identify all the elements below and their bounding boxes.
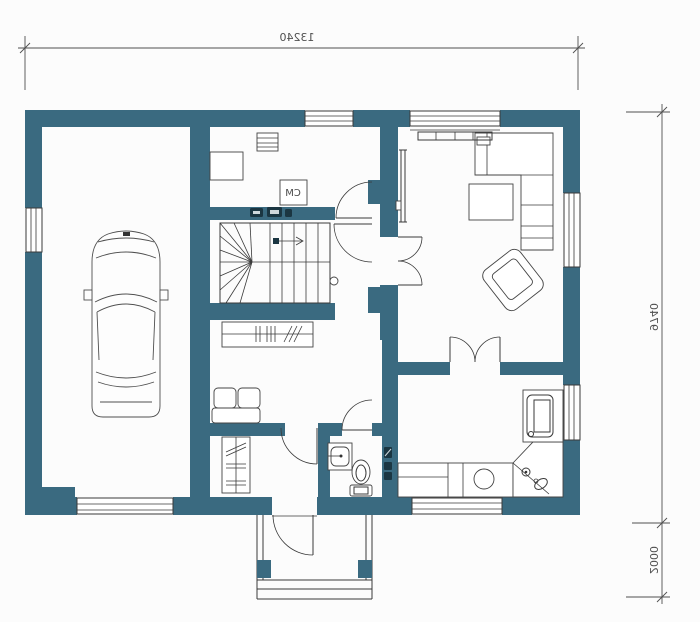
wardrobe-corridor bbox=[222, 437, 250, 493]
wardrobe-under-stairs bbox=[222, 322, 313, 347]
window-top-utility bbox=[305, 111, 353, 126]
kitchen-double-door bbox=[450, 337, 500, 362]
desk bbox=[210, 152, 243, 180]
stair-newel-post bbox=[330, 277, 338, 285]
window-left-garage bbox=[26, 208, 42, 252]
porch-steps bbox=[257, 580, 372, 599]
utility-room-door bbox=[336, 182, 372, 218]
staircase bbox=[220, 223, 338, 303]
window-right-kitchen bbox=[564, 385, 580, 440]
cm-label: CM bbox=[285, 188, 301, 199]
stair-direction-arrow bbox=[273, 237, 303, 245]
car-mirror-right bbox=[160, 290, 168, 300]
living-room-double-door bbox=[398, 237, 422, 285]
wc-fixtures bbox=[328, 443, 372, 496]
kitchen-furniture bbox=[384, 390, 563, 497]
dimension-top-width: 13240 bbox=[18, 31, 585, 90]
car-mirror-left bbox=[84, 290, 92, 300]
wc-door bbox=[342, 400, 372, 430]
small-appliance bbox=[257, 133, 278, 151]
entrance-door bbox=[273, 515, 313, 555]
sofa-pillow bbox=[477, 137, 490, 145]
electrical-switches-kitchen bbox=[384, 447, 392, 480]
wash-basin bbox=[328, 443, 352, 470]
hall-furniture bbox=[212, 322, 313, 493]
garage-door bbox=[77, 498, 173, 514]
window-top-living bbox=[410, 111, 500, 130]
armchair bbox=[479, 246, 546, 314]
boiler-box-cm: CM bbox=[280, 180, 307, 205]
kitchen-sink bbox=[474, 469, 494, 489]
coffee-table bbox=[469, 184, 513, 220]
lower-hall-door bbox=[281, 428, 317, 464]
hall-door bbox=[334, 224, 372, 262]
porch-pillar-right bbox=[358, 560, 372, 578]
oven bbox=[523, 390, 563, 442]
dim-right-label: 9740 bbox=[647, 303, 660, 331]
hall-sofa bbox=[212, 388, 260, 423]
floor-plan: 13240 9740 2000 bbox=[0, 0, 700, 622]
utility-room-furniture: CM bbox=[210, 133, 307, 217]
window-right-living bbox=[564, 193, 580, 267]
garage-car bbox=[84, 231, 168, 417]
floor-plan-drawing: 13240 9740 2000 bbox=[0, 0, 700, 622]
stair-winders bbox=[220, 223, 252, 303]
dim-top-label: 13240 bbox=[280, 31, 315, 44]
dimension-right-height: 9740 2000 bbox=[626, 104, 670, 604]
living-room-furniture bbox=[396, 132, 553, 314]
porch-pillar-left bbox=[257, 560, 271, 578]
entrance-porch bbox=[257, 515, 372, 599]
toilet bbox=[350, 460, 372, 496]
window-bottom-kitchen bbox=[412, 498, 502, 514]
car-badge bbox=[123, 232, 130, 236]
dim-porch-label: 2000 bbox=[647, 546, 660, 574]
